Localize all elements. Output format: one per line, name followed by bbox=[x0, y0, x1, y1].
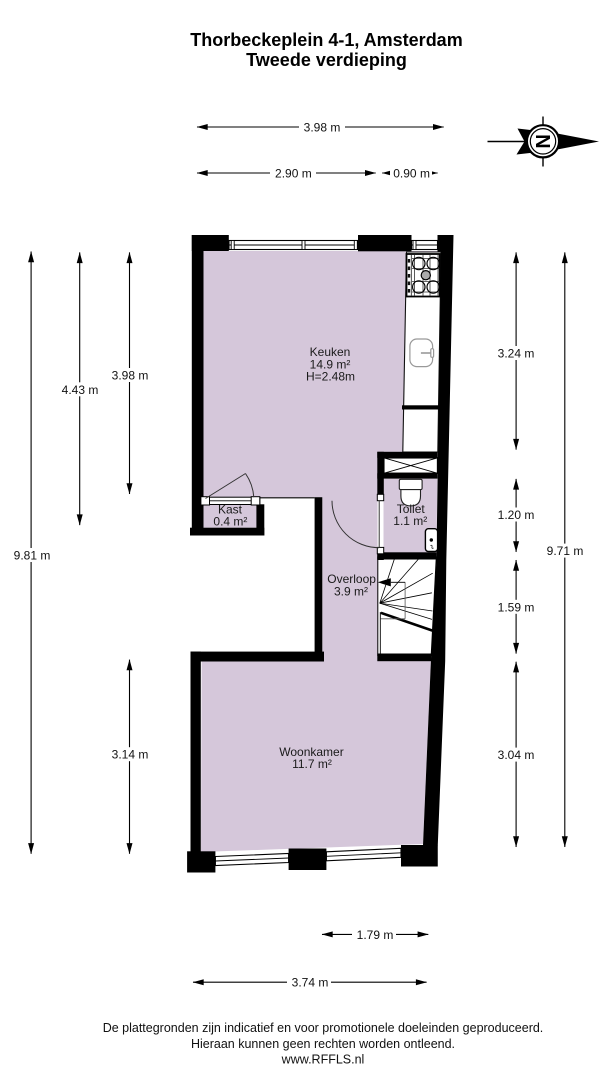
svg-text:0.4 m²: 0.4 m² bbox=[213, 514, 247, 528]
svg-text:3.24 m: 3.24 m bbox=[498, 346, 535, 360]
svg-text:3.9 m²: 3.9 m² bbox=[334, 584, 368, 598]
svg-text:De plattegronden zijn indicati: De plattegronden zijn indicatief en voor… bbox=[103, 1021, 544, 1035]
svg-text:N: N bbox=[531, 134, 553, 148]
svg-text:www.RFFLS.nl: www.RFFLS.nl bbox=[281, 1053, 365, 1067]
svg-text:H=2.48m: H=2.48m bbox=[306, 370, 355, 384]
svg-text:1.1 m²: 1.1 m² bbox=[393, 514, 427, 528]
svg-text:1.20 m: 1.20 m bbox=[498, 508, 535, 522]
svg-text:Tweede verdieping: Tweede verdieping bbox=[246, 50, 407, 70]
svg-text:4.43 m: 4.43 m bbox=[62, 383, 99, 397]
svg-text:0.90 m: 0.90 m bbox=[393, 167, 430, 181]
svg-text:Thorbeckeplein 4-1, Amsterdam: Thorbeckeplein 4-1, Amsterdam bbox=[190, 30, 462, 50]
svg-text:3.74 m: 3.74 m bbox=[292, 976, 329, 990]
svg-text:3.98 m: 3.98 m bbox=[304, 121, 341, 135]
svg-text:1.79 m: 1.79 m bbox=[357, 928, 394, 942]
svg-text:2.90 m: 2.90 m bbox=[275, 167, 312, 181]
svg-text:9.71 m: 9.71 m bbox=[547, 544, 584, 558]
svg-text:11.7 m²: 11.7 m² bbox=[292, 757, 332, 771]
svg-text:1.59 m: 1.59 m bbox=[498, 600, 535, 614]
svg-text:3.04 m: 3.04 m bbox=[498, 748, 535, 762]
svg-text:3.14 m: 3.14 m bbox=[112, 748, 149, 762]
svg-text:Hieraan kunnen geen rechten wo: Hieraan kunnen geen rechten worden ontle… bbox=[191, 1037, 455, 1051]
svg-text:3.98 m: 3.98 m bbox=[112, 369, 149, 383]
svg-text:9.81 m: 9.81 m bbox=[14, 549, 51, 563]
